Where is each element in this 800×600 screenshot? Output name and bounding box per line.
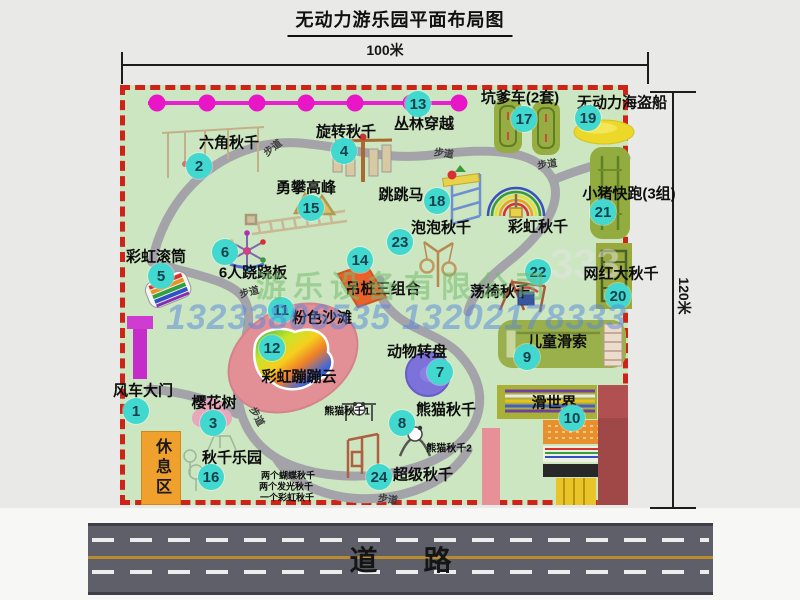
page-title: 无动力游乐园平面布局图 <box>288 6 513 37</box>
rest-area-zone: 休息区 <box>141 431 181 505</box>
road-label: 道路 <box>88 526 713 592</box>
park-map-area <box>120 85 628 505</box>
park-layout-screenshot: 无动力游乐园平面布局图 100米 120米 <box>0 0 800 600</box>
road: 道路 <box>88 523 713 595</box>
dimension-label-vertical: 120米 <box>674 277 694 314</box>
dimension-label-horizontal: 100米 <box>366 40 403 60</box>
